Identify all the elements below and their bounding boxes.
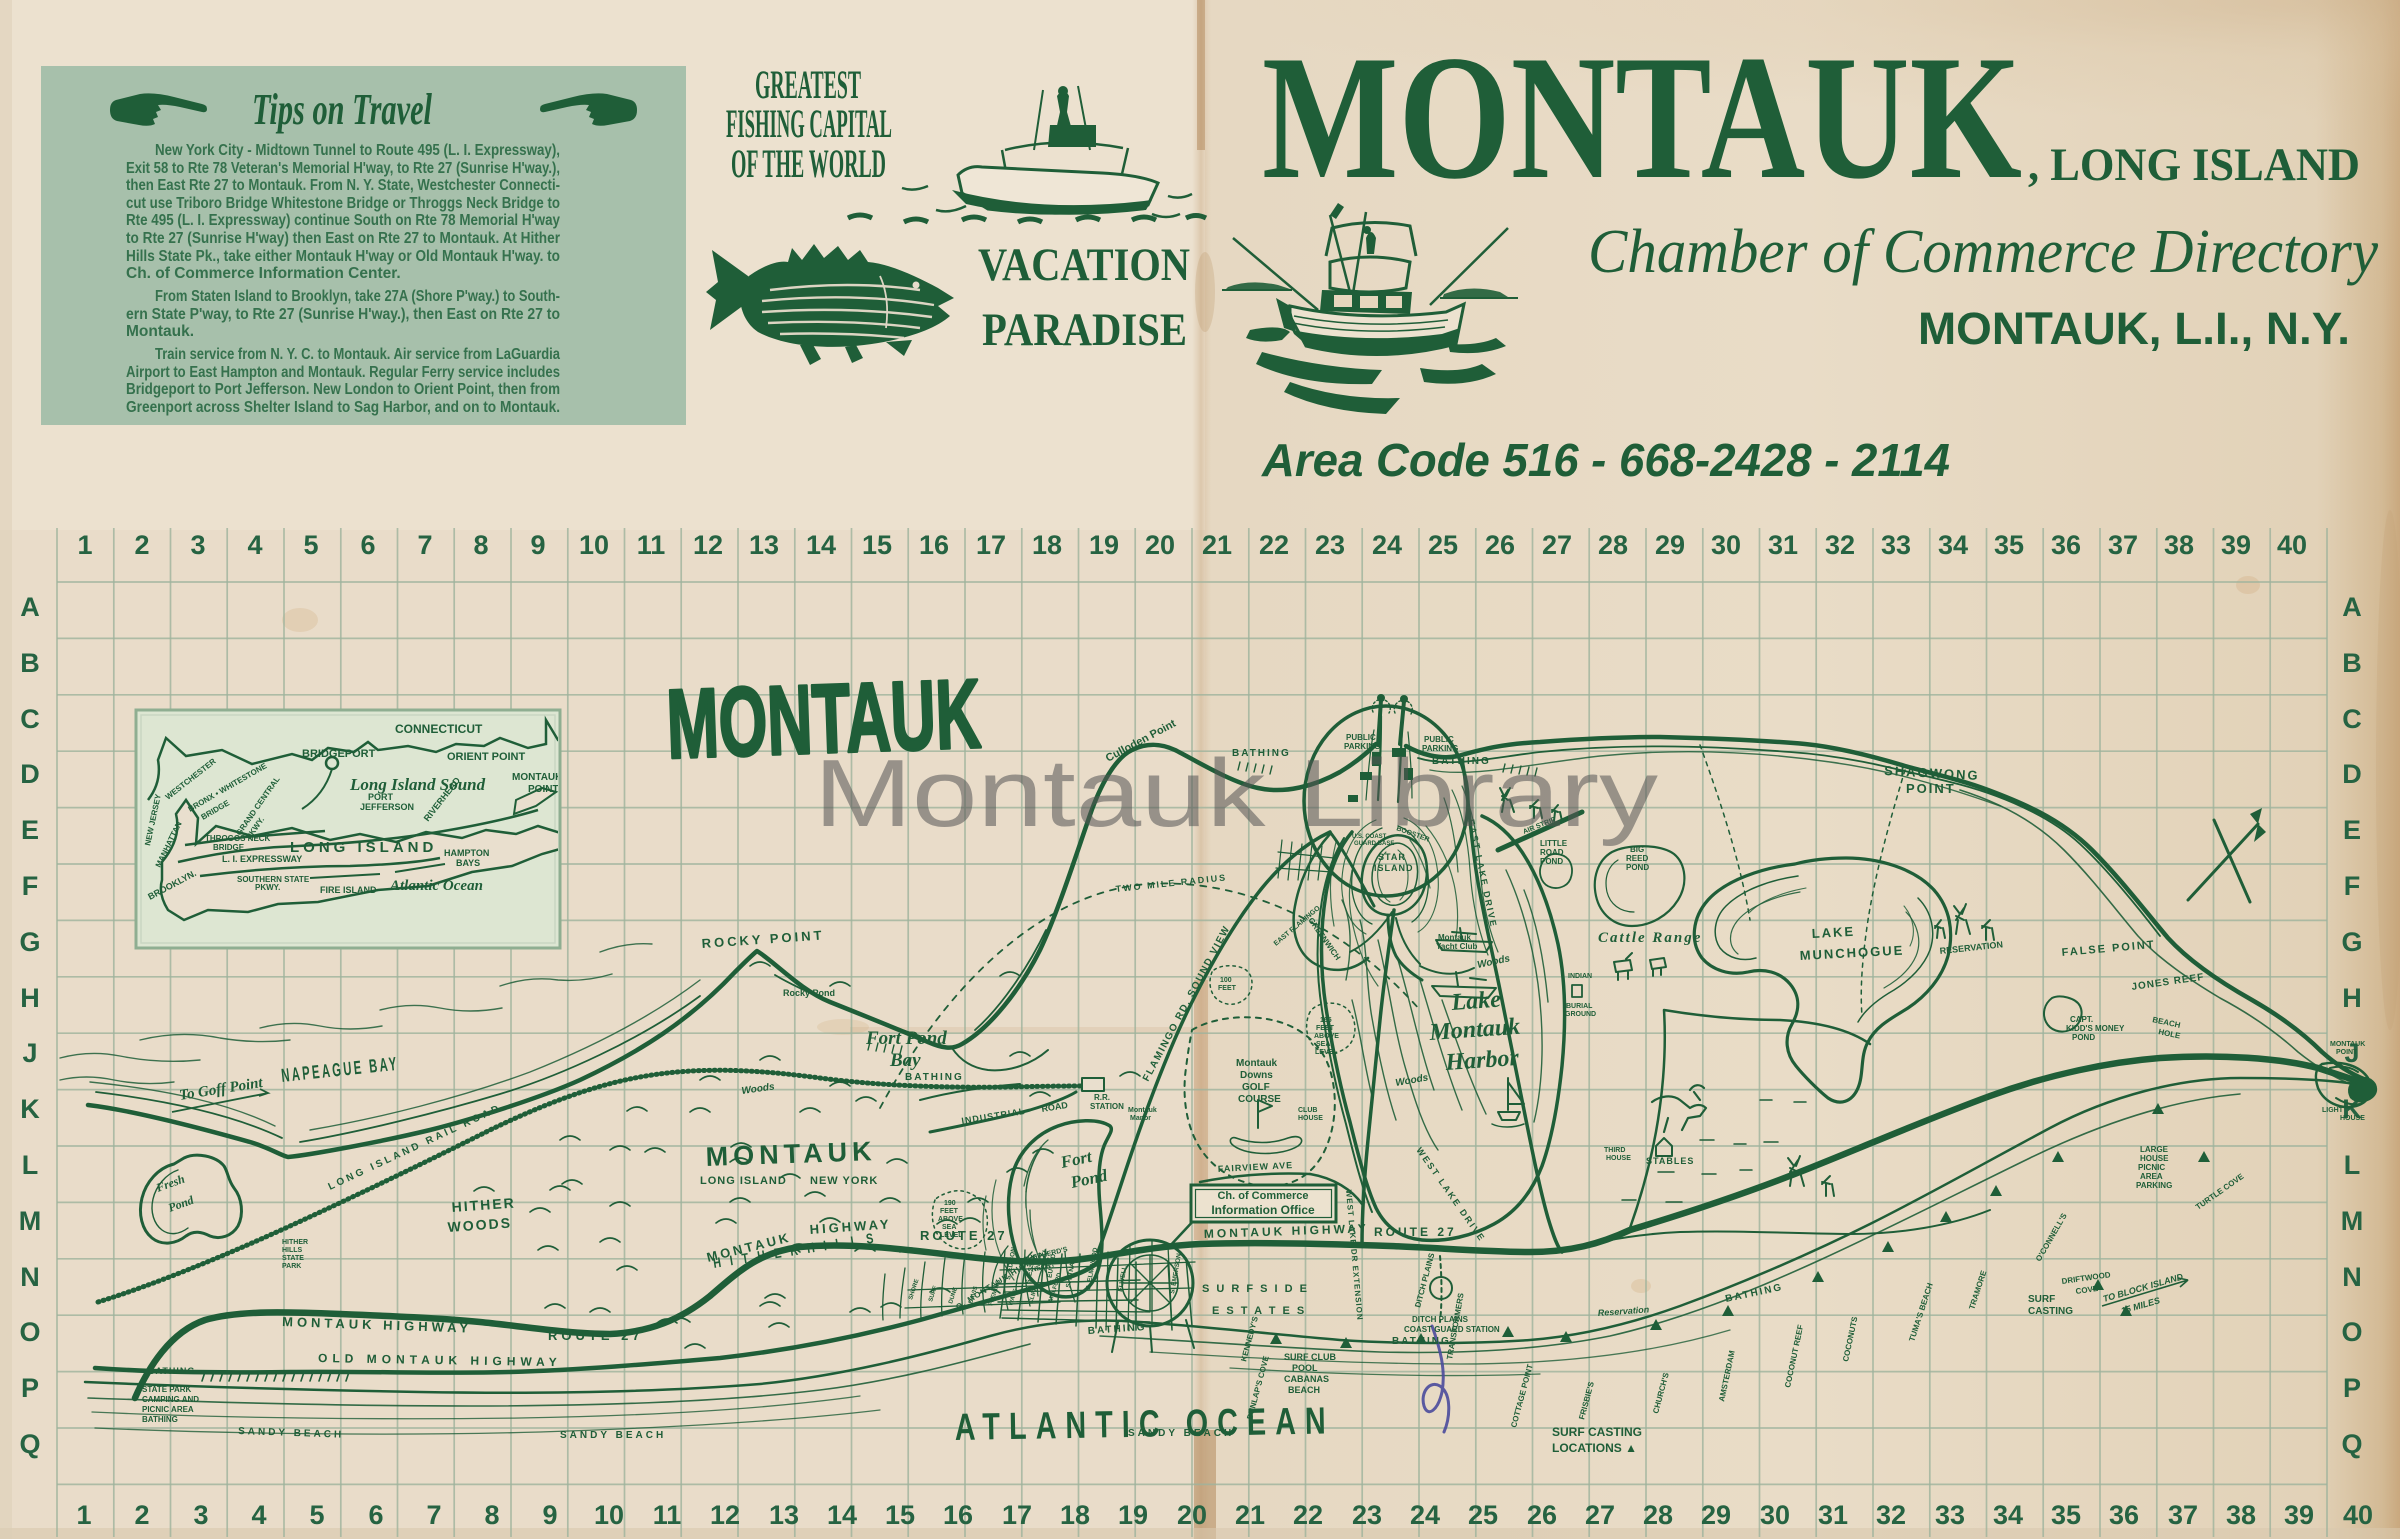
svg-text:SEA: SEA bbox=[942, 1224, 956, 1231]
svg-text:FEET: FEET bbox=[1316, 1025, 1335, 1032]
svg-text:2: 2 bbox=[134, 530, 149, 560]
svg-text:Chamber of Commerce Directory: Chamber of Commerce Directory bbox=[1588, 218, 2378, 286]
svg-text:16: 16 bbox=[943, 1500, 973, 1530]
svg-text:14: 14 bbox=[806, 530, 836, 560]
svg-text:Rte 495 (L. I. Expressway) co: Rte 495 (L. I. Expressway) continue Sout… bbox=[126, 212, 560, 229]
svg-text:28: 28 bbox=[1598, 530, 1628, 560]
svg-text:22: 22 bbox=[1259, 530, 1289, 560]
svg-text:13: 13 bbox=[749, 530, 779, 560]
svg-text:30: 30 bbox=[1711, 530, 1741, 560]
svg-text:36: 36 bbox=[2109, 1500, 2139, 1530]
svg-text:From Staten Island to Brooklyn: From Staten Island to Brooklyn, take 27A… bbox=[155, 288, 560, 305]
svg-text:INDIAN: INDIAN bbox=[1568, 973, 1592, 980]
svg-text:15: 15 bbox=[862, 530, 892, 560]
svg-text:7: 7 bbox=[417, 530, 432, 560]
svg-text:POINT: POINT bbox=[2336, 1049, 2358, 1056]
svg-text:5: 5 bbox=[309, 1500, 324, 1530]
svg-text:F: F bbox=[2344, 871, 2361, 901]
svg-text:ROUTE 27: ROUTE 27 bbox=[920, 1228, 1008, 1243]
svg-text:N: N bbox=[2342, 1262, 2362, 1292]
svg-text:L. I. EXPRESSWAY: L. I. EXPRESSWAY bbox=[222, 854, 302, 864]
svg-text:32: 32 bbox=[1876, 1500, 1906, 1530]
svg-text:K: K bbox=[20, 1094, 40, 1124]
svg-text:H: H bbox=[20, 983, 40, 1013]
svg-text:KIDD'S MONEY: KIDD'S MONEY bbox=[2066, 1024, 2125, 1033]
svg-text:PICNIC: PICNIC bbox=[2138, 1163, 2165, 1172]
svg-text:18: 18 bbox=[1032, 530, 1062, 560]
svg-text:20: 20 bbox=[1177, 1500, 1207, 1530]
svg-text:ROAD: ROAD bbox=[1540, 848, 1564, 857]
svg-text:NEW YORK: NEW YORK bbox=[810, 1175, 878, 1187]
svg-text:16: 16 bbox=[919, 530, 949, 560]
svg-text:1: 1 bbox=[76, 1500, 91, 1530]
svg-text:G: G bbox=[2341, 927, 2362, 957]
svg-text:JEFFERSON: JEFFERSON bbox=[360, 802, 414, 812]
svg-text:Area Code 516 - 668-2428 - 21: Area Code 516 - 668-2428 - 2114 bbox=[1261, 434, 1950, 486]
svg-text:POND: POND bbox=[1540, 857, 1563, 866]
svg-text:M: M bbox=[2341, 1206, 2364, 1236]
svg-text:25: 25 bbox=[1428, 530, 1458, 560]
svg-text:37: 37 bbox=[2168, 1500, 2198, 1530]
svg-text:Bay: Bay bbox=[889, 1050, 921, 1071]
svg-text:M: M bbox=[19, 1206, 42, 1236]
svg-text:36: 36 bbox=[2051, 530, 2081, 560]
svg-text:HITHER: HITHER bbox=[282, 1239, 308, 1246]
svg-text:P: P bbox=[21, 1373, 39, 1403]
svg-text:BATHING: BATHING bbox=[142, 1415, 178, 1424]
svg-text:190: 190 bbox=[944, 1200, 956, 1207]
svg-text:27: 27 bbox=[1542, 530, 1572, 560]
svg-text:Montauk: Montauk bbox=[1236, 1058, 1278, 1069]
svg-text:STAR: STAR bbox=[1378, 852, 1406, 862]
svg-text:R.R.: R.R. bbox=[1094, 1093, 1110, 1102]
svg-text:BAYS: BAYS bbox=[456, 858, 480, 868]
svg-text:N: N bbox=[20, 1262, 40, 1292]
svg-text:LARGE: LARGE bbox=[2140, 1145, 2169, 1154]
svg-text:17: 17 bbox=[976, 530, 1006, 560]
svg-text:STATION: STATION bbox=[1090, 1102, 1124, 1111]
svg-text:Q: Q bbox=[2341, 1429, 2362, 1459]
svg-text:32: 32 bbox=[1825, 530, 1855, 560]
svg-text:17: 17 bbox=[1002, 1500, 1032, 1530]
svg-text:39: 39 bbox=[2284, 1500, 2314, 1530]
svg-text:MONTAUK: MONTAUK bbox=[512, 772, 563, 783]
svg-text:FEET: FEET bbox=[1218, 985, 1237, 992]
svg-text:L: L bbox=[2344, 1150, 2361, 1180]
svg-text:ABOVE: ABOVE bbox=[938, 1216, 963, 1223]
svg-text:PORT: PORT bbox=[368, 792, 394, 802]
svg-text:HOUSE: HOUSE bbox=[2140, 1154, 2169, 1163]
svg-text:6: 6 bbox=[360, 530, 375, 560]
svg-text:7: 7 bbox=[426, 1500, 441, 1530]
svg-text:19: 19 bbox=[1118, 1500, 1148, 1530]
svg-text:POINT: POINT bbox=[1906, 781, 1956, 796]
svg-text:CLUB: CLUB bbox=[1298, 1107, 1317, 1114]
svg-text:38: 38 bbox=[2164, 530, 2194, 560]
svg-text:Lake: Lake bbox=[1450, 987, 1502, 1016]
svg-text:BATHING: BATHING bbox=[148, 1366, 195, 1376]
svg-text:POND: POND bbox=[2072, 1033, 2095, 1042]
svg-text:PARK: PARK bbox=[282, 1263, 301, 1270]
svg-text:Greenport across Shelter Islan: Greenport across Shelter Island to Sag H… bbox=[126, 399, 560, 416]
svg-text:15: 15 bbox=[885, 1500, 915, 1530]
svg-text:31: 31 bbox=[1768, 530, 1798, 560]
svg-text:STABLES: STABLES bbox=[1646, 1156, 1694, 1166]
svg-text:C: C bbox=[20, 704, 40, 734]
svg-text:6: 6 bbox=[368, 1500, 383, 1530]
svg-text:E: E bbox=[2343, 815, 2361, 845]
svg-text:PKWY.: PKWY. bbox=[255, 883, 280, 892]
svg-text:18: 18 bbox=[1060, 1500, 1090, 1530]
svg-text:34: 34 bbox=[1938, 530, 1968, 560]
svg-text:HOUSE: HOUSE bbox=[1606, 1155, 1631, 1162]
svg-text:3: 3 bbox=[193, 1500, 208, 1530]
svg-text:24: 24 bbox=[1372, 530, 1402, 560]
svg-text:22: 22 bbox=[1293, 1500, 1323, 1530]
svg-text:BRIDGE: BRIDGE bbox=[213, 843, 245, 852]
svg-text:D: D bbox=[20, 759, 40, 789]
svg-text:S U R F S I D E: S U R F S I D E bbox=[1202, 1283, 1309, 1295]
svg-text:39: 39 bbox=[2221, 530, 2251, 560]
svg-text:MONTAUK: MONTAUK bbox=[705, 1136, 877, 1172]
svg-text:33: 33 bbox=[1935, 1500, 1965, 1530]
svg-text:POOL: POOL bbox=[1292, 1363, 1318, 1373]
svg-text:ISLAND: ISLAND bbox=[1374, 863, 1414, 873]
svg-text:Fort Pond: Fort Pond bbox=[865, 1028, 947, 1049]
svg-text:Cattle Range: Cattle Range bbox=[1598, 930, 1702, 946]
svg-text:27: 27 bbox=[1585, 1500, 1615, 1530]
svg-text:31: 31 bbox=[1818, 1500, 1848, 1530]
svg-text:HILLS: HILLS bbox=[282, 1247, 303, 1254]
svg-text:35: 35 bbox=[2051, 1500, 2081, 1530]
svg-text:20: 20 bbox=[1145, 530, 1175, 560]
svg-text:10: 10 bbox=[579, 530, 609, 560]
svg-text:2: 2 bbox=[134, 1500, 149, 1530]
svg-text:COAST GUARD STATION: COAST GUARD STATION bbox=[1404, 1325, 1500, 1334]
svg-text:, LONG ISLAND: , LONG ISLAND bbox=[2028, 139, 2360, 191]
svg-text:C: C bbox=[2342, 704, 2362, 734]
svg-text:3: 3 bbox=[190, 530, 205, 560]
svg-text:21: 21 bbox=[1202, 530, 1232, 560]
svg-text:SEA: SEA bbox=[1316, 1041, 1330, 1048]
svg-text:Montauk: Montauk bbox=[1128, 1107, 1157, 1114]
svg-text:Downs: Downs bbox=[1240, 1070, 1273, 1081]
svg-text:28: 28 bbox=[1643, 1500, 1673, 1530]
svg-text:4: 4 bbox=[247, 530, 262, 560]
svg-text:BATHING: BATHING bbox=[905, 1072, 964, 1083]
svg-text:Ch. of Commerce: Ch. of Commerce bbox=[1217, 1190, 1308, 1202]
svg-text:SURF CASTING: SURF CASTING bbox=[1552, 1425, 1642, 1439]
svg-text:ORIENT POINT: ORIENT POINT bbox=[447, 751, 526, 763]
svg-text:B: B bbox=[2342, 648, 2362, 678]
svg-text:4: 4 bbox=[251, 1500, 266, 1530]
svg-text:ROUTE 27: ROUTE 27 bbox=[1374, 1225, 1457, 1239]
svg-text:POINT: POINT bbox=[528, 784, 559, 795]
svg-text:LOCATIONS ▲: LOCATIONS ▲ bbox=[1552, 1441, 1637, 1455]
svg-text:Rocky Pond: Rocky Pond bbox=[783, 988, 835, 998]
svg-text:23: 23 bbox=[1315, 530, 1345, 560]
svg-text:cut use Triboro Bridge Whites: cut use Triboro Bridge Whitestone Bridge… bbox=[126, 195, 560, 212]
svg-text:A: A bbox=[2342, 592, 2362, 622]
svg-text:Airport to East Hampton and Mo: Airport to East Hampton and Montauk. Reg… bbox=[126, 364, 560, 381]
svg-text:25: 25 bbox=[1468, 1500, 1498, 1530]
svg-text:MONTAUK, L.I., N.Y.: MONTAUK, L.I., N.Y. bbox=[1918, 303, 2350, 354]
svg-text:GOLF: GOLF bbox=[1242, 1082, 1270, 1093]
svg-text:BRIDGEPORT: BRIDGEPORT bbox=[302, 748, 376, 760]
svg-text:FISHING CAPITAL: FISHING CAPITAL bbox=[726, 101, 892, 146]
svg-text:Harbor: Harbor bbox=[1444, 1045, 1521, 1076]
svg-text:9: 9 bbox=[530, 530, 545, 560]
svg-text:CAPT.: CAPT. bbox=[2070, 1015, 2093, 1024]
svg-text:CONNECTICUT: CONNECTICUT bbox=[395, 722, 483, 736]
svg-text:to Rte 27 (Sunrise H'way) then: to Rte 27 (Sunrise H'way) then East on R… bbox=[126, 230, 560, 247]
svg-text:Manor: Manor bbox=[1130, 1115, 1151, 1122]
svg-text:PICNIC AREA: PICNIC AREA bbox=[142, 1405, 194, 1414]
svg-text:Information Office: Information Office bbox=[1211, 1203, 1315, 1217]
svg-text:Montauk Library: Montauk Library bbox=[814, 740, 1658, 847]
svg-text:BURIAL: BURIAL bbox=[1566, 1003, 1593, 1010]
svg-text:40: 40 bbox=[2277, 530, 2307, 560]
svg-text:40: 40 bbox=[2343, 1500, 2373, 1530]
svg-text:29: 29 bbox=[1701, 1500, 1731, 1530]
svg-text:CAMPING AND: CAMPING AND bbox=[142, 1395, 199, 1404]
svg-text:ROUTE 27: ROUTE 27 bbox=[548, 1328, 644, 1343]
svg-text:100: 100 bbox=[1220, 977, 1232, 984]
svg-text:10: 10 bbox=[594, 1500, 624, 1530]
svg-text:HOUSE: HOUSE bbox=[2340, 1115, 2365, 1122]
svg-text:PARKING: PARKING bbox=[2136, 1181, 2172, 1190]
svg-text:12: 12 bbox=[710, 1500, 740, 1530]
svg-text:33: 33 bbox=[1881, 530, 1911, 560]
svg-text:THIRD: THIRD bbox=[1604, 1147, 1625, 1154]
svg-text:Montauk.: Montauk. bbox=[126, 323, 194, 340]
svg-text:SANDY BEACH: SANDY BEACH bbox=[560, 1430, 666, 1441]
svg-text:LEVEL: LEVEL bbox=[1315, 1049, 1338, 1056]
svg-text:L: L bbox=[22, 1150, 39, 1180]
svg-text:LAKE: LAKE bbox=[1811, 924, 1855, 941]
svg-text:REED: REED bbox=[1626, 854, 1648, 863]
svg-text:ern State P'way, to Rte 27 (Su: ern State P'way, to Rte 27 (Sunrise H'wa… bbox=[126, 306, 560, 323]
svg-text:E: E bbox=[21, 815, 39, 845]
svg-text:STATE PARK: STATE PARK bbox=[142, 1385, 192, 1394]
svg-text:DITCH PLAINS: DITCH PLAINS bbox=[1412, 1315, 1469, 1324]
svg-text:Montauk: Montauk bbox=[1438, 933, 1471, 942]
svg-text:Hills State Pk., take either M: Hills State Pk., take either Montauk H'w… bbox=[126, 248, 560, 265]
svg-text:P: P bbox=[2343, 1373, 2361, 1403]
svg-text:LEVEL: LEVEL bbox=[940, 1232, 963, 1239]
svg-text:MONTAUK: MONTAUK bbox=[1262, 18, 2022, 216]
svg-text:Yacht Club: Yacht Club bbox=[1436, 942, 1477, 951]
svg-text:F: F bbox=[22, 871, 39, 901]
svg-text:J: J bbox=[22, 1038, 37, 1068]
svg-text:BEACH: BEACH bbox=[1288, 1385, 1320, 1395]
svg-text:COURSE: COURSE bbox=[1238, 1094, 1281, 1105]
svg-text:30: 30 bbox=[1760, 1500, 1790, 1530]
svg-text:LIGHT: LIGHT bbox=[2322, 1107, 2344, 1114]
svg-text:O: O bbox=[19, 1317, 40, 1347]
svg-text:SANDY BEACH: SANDY BEACH bbox=[1128, 1428, 1234, 1439]
svg-text:FIRE ISLAND: FIRE ISLAND bbox=[320, 885, 377, 895]
svg-text:Q: Q bbox=[19, 1429, 40, 1459]
svg-text:11: 11 bbox=[637, 530, 666, 560]
svg-text:B: B bbox=[20, 648, 40, 678]
svg-text:23: 23 bbox=[1352, 1500, 1382, 1530]
svg-text:Exit 58 to Rte 78 Veteran's Me: Exit 58 to Rte 78 Veteran's Memorial H'w… bbox=[126, 160, 560, 177]
svg-text:D: D bbox=[2342, 759, 2362, 789]
svg-text:GROUND: GROUND bbox=[1565, 1011, 1596, 1018]
svg-text:8: 8 bbox=[484, 1500, 499, 1530]
svg-text:ATLANTIC OCEAN: ATLANTIC OCEAN bbox=[954, 1400, 1335, 1449]
svg-text:21: 21 bbox=[1235, 1500, 1265, 1530]
svg-text:38: 38 bbox=[2226, 1500, 2256, 1530]
svg-text:Train service from N. Y. C. to: Train service from N. Y. C. to Montauk. … bbox=[155, 346, 560, 363]
svg-text:13: 13 bbox=[769, 1500, 799, 1530]
svg-text:24: 24 bbox=[1410, 1500, 1440, 1530]
svg-text:14: 14 bbox=[827, 1500, 857, 1530]
svg-text:5: 5 bbox=[303, 530, 318, 560]
svg-text:FEET: FEET bbox=[940, 1208, 959, 1215]
svg-text:8: 8 bbox=[473, 530, 488, 560]
svg-text:ABOVE: ABOVE bbox=[1314, 1033, 1339, 1040]
svg-text:BATHING: BATHING bbox=[1392, 1336, 1451, 1347]
svg-text:29: 29 bbox=[1655, 530, 1685, 560]
svg-text:G: G bbox=[19, 927, 40, 957]
svg-text:O: O bbox=[2341, 1317, 2362, 1347]
svg-text:12: 12 bbox=[693, 530, 723, 560]
svg-text:Bridgeport to Port Jefferson.: Bridgeport to Port Jefferson. New London… bbox=[126, 381, 560, 398]
svg-text:34: 34 bbox=[1993, 1500, 2023, 1530]
svg-text:SURF CLUB: SURF CLUB bbox=[1284, 1352, 1336, 1362]
svg-text:Atlantic Ocean: Atlantic Ocean bbox=[389, 878, 483, 894]
svg-text:LONG ISLAND: LONG ISLAND bbox=[700, 1175, 787, 1187]
svg-text:then East Rte 27 to Montauk.: then East Rte 27 to Montauk. From N. Y. … bbox=[126, 177, 560, 194]
svg-text:AREA: AREA bbox=[2140, 1172, 2163, 1181]
svg-text:H: H bbox=[2342, 983, 2362, 1013]
svg-text:Ch. of Commerce Information Ce: Ch. of Commerce Information Center. bbox=[126, 265, 401, 282]
svg-text:OF THE WORLD: OF THE WORLD bbox=[731, 141, 886, 186]
svg-text:165: 165 bbox=[1320, 1017, 1332, 1024]
svg-text:Tips on Travel: Tips on Travel bbox=[252, 85, 433, 134]
svg-text:POND: POND bbox=[1626, 863, 1649, 872]
svg-text:26: 26 bbox=[1527, 1500, 1557, 1530]
svg-text:9: 9 bbox=[542, 1500, 557, 1530]
svg-text:STATE: STATE bbox=[282, 1255, 304, 1262]
svg-text:LONG ISLAND: LONG ISLAND bbox=[290, 839, 437, 856]
svg-text:New York City - Midtown Tunn: New York City - Midtown Tunnel to Route … bbox=[155, 142, 560, 159]
svg-text:1: 1 bbox=[77, 530, 92, 560]
svg-text:19: 19 bbox=[1089, 530, 1119, 560]
svg-text:PARADISE: PARADISE bbox=[982, 304, 1187, 356]
svg-text:A: A bbox=[20, 592, 40, 622]
svg-text:CASTING: CASTING bbox=[2028, 1306, 2073, 1317]
svg-text:E S T A T E S: E S T A T E S bbox=[1212, 1305, 1306, 1317]
svg-text:HAMPTON: HAMPTON bbox=[444, 848, 489, 858]
svg-text:11: 11 bbox=[653, 1500, 682, 1530]
svg-text:MONTAUK: MONTAUK bbox=[2330, 1041, 2365, 1048]
svg-text:37: 37 bbox=[2108, 530, 2138, 560]
svg-text:CABANAS: CABANAS bbox=[1284, 1374, 1329, 1384]
svg-text:SURF: SURF bbox=[2028, 1294, 2055, 1305]
svg-text:26: 26 bbox=[1485, 530, 1515, 560]
svg-text:HOUSE: HOUSE bbox=[1298, 1115, 1323, 1122]
svg-text:VACATION: VACATION bbox=[978, 239, 1190, 291]
svg-text:35: 35 bbox=[1994, 530, 2024, 560]
